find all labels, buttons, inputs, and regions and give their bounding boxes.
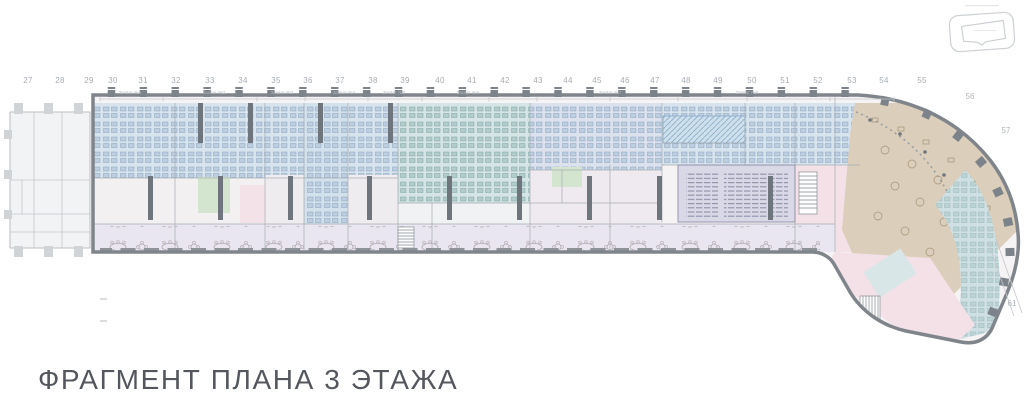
floor-plan-drawing — [0, 0, 1024, 412]
existing-building-faded — [4, 103, 90, 257]
page-title: ФРАГМЕНТ ПЛАНА 3 ЭТАЖА — [38, 364, 458, 396]
grid-row-mark — [100, 320, 107, 322]
grid-row-mark — [100, 298, 107, 300]
floor-zones — [85, 90, 1024, 355]
key-plan — [949, 5, 1015, 52]
top-wall-columns — [104, 87, 860, 97]
floor-plan-page: 2728293031323334353637383940414243444546… — [0, 0, 1024, 412]
zone-meeting-green-left — [198, 177, 230, 213]
